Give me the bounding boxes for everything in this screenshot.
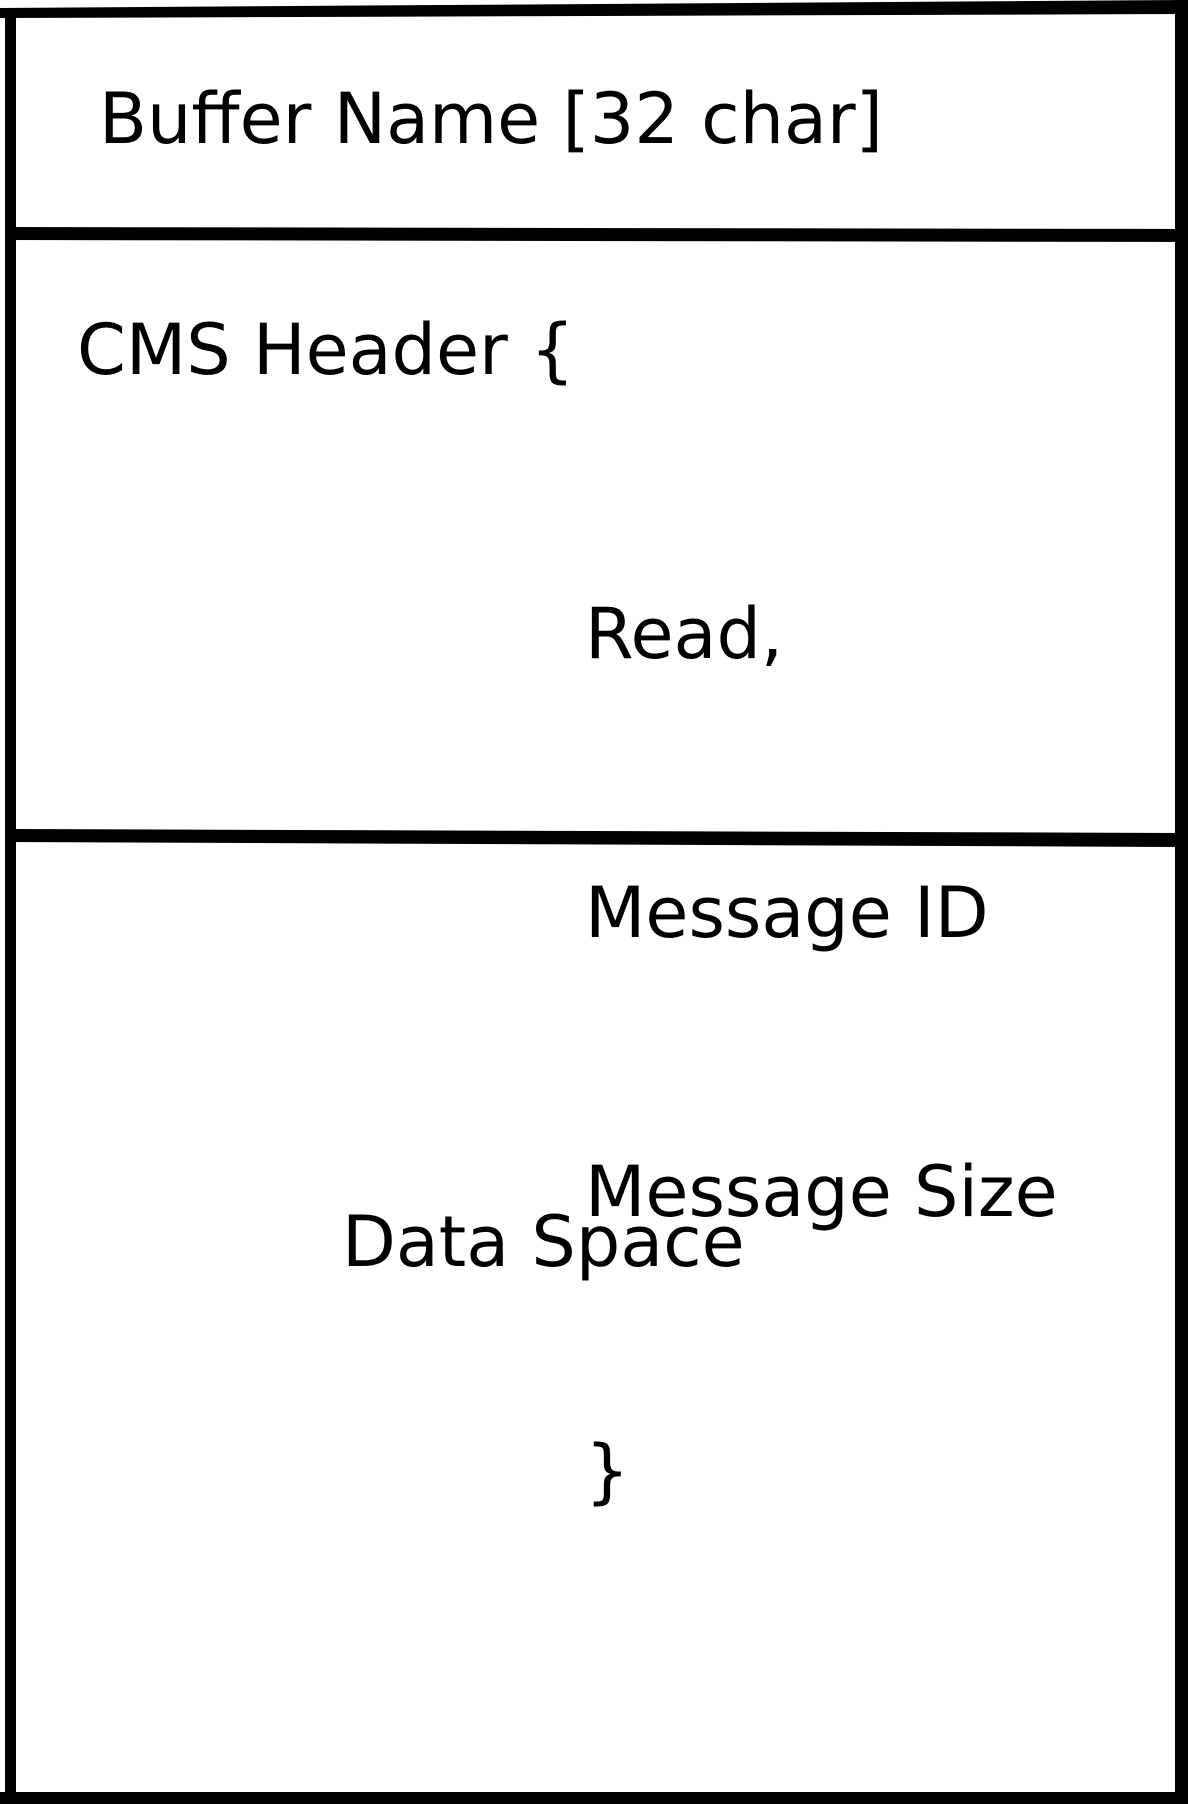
divider-buffer-name-cms-header: [5, 227, 1183, 242]
data-space-label: Data Space: [342, 1202, 745, 1283]
cms-header-open-line: CMS Header {: [77, 310, 575, 391]
outer-border-right: [1175, 0, 1188, 1800]
cms-header-field-read: Read,: [585, 588, 1058, 681]
cms-header-field-message-id: Message ID: [585, 867, 1058, 960]
cms-header-fields: Read, Message ID Message Size }: [585, 402, 1058, 1704]
cms-header-close-brace: }: [585, 1425, 1058, 1518]
buffer-name-label: Buffer Name [32 char]: [99, 79, 883, 160]
buffer-layout-diagram: Buffer Name [32 char] CMS Header { Read,…: [0, 0, 1188, 1804]
outer-border-left: [5, 8, 16, 1800]
outer-border-top: [0, 0, 1188, 18]
outer-border-bottom: [0, 1792, 1188, 1804]
